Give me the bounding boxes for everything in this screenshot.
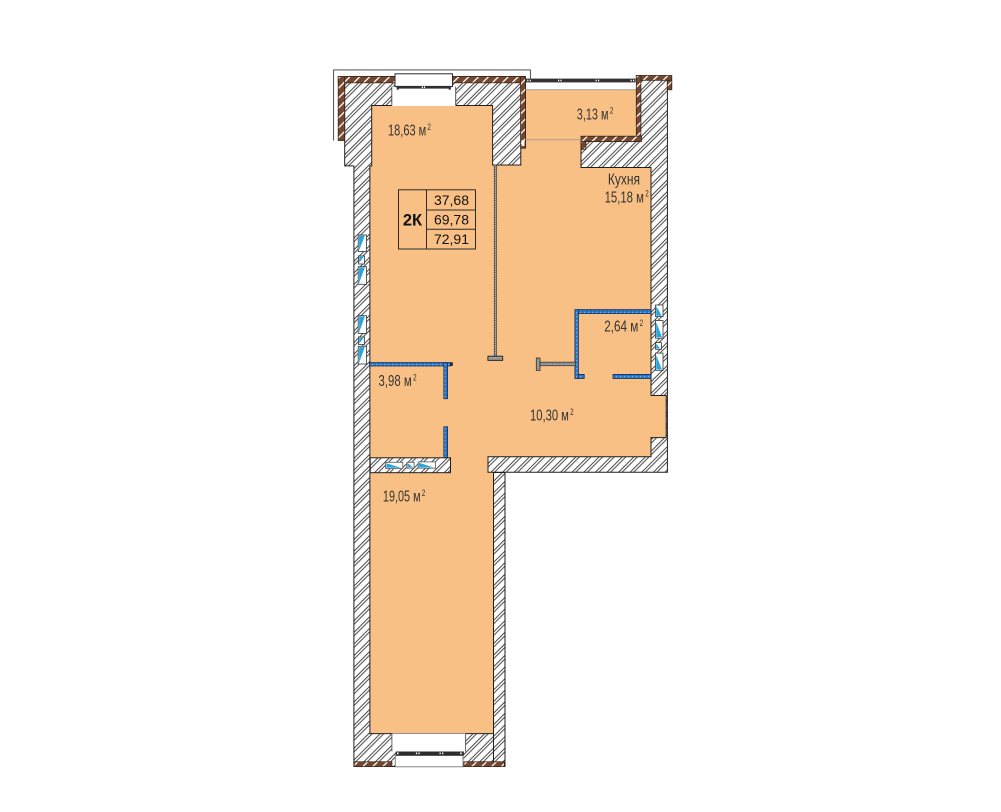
svg-text:2,64 м: 2,64 м xyxy=(604,319,638,336)
svg-text:3,13 м: 3,13 м xyxy=(577,106,609,123)
svg-text:3,98 м: 3,98 м xyxy=(379,373,412,390)
svg-text:2К: 2К xyxy=(403,211,423,229)
svg-text:72,91: 72,91 xyxy=(434,231,469,247)
svg-text:19,05 м: 19,05 м xyxy=(383,489,421,506)
svg-text:2: 2 xyxy=(640,318,644,329)
svg-text:2: 2 xyxy=(413,372,417,383)
svg-text:2: 2 xyxy=(645,189,649,200)
svg-text:2: 2 xyxy=(427,122,431,133)
svg-text:18,63 м: 18,63 м xyxy=(388,123,426,140)
svg-text:37,68: 37,68 xyxy=(434,192,469,208)
svg-text:69,78: 69,78 xyxy=(434,212,469,228)
svg-text:10,30 м: 10,30 м xyxy=(530,408,569,425)
svg-text:2: 2 xyxy=(610,106,614,117)
svg-text:2: 2 xyxy=(570,407,574,418)
svg-text:2: 2 xyxy=(422,488,426,499)
svg-text:Кухня: Кухня xyxy=(608,171,640,188)
svg-text:15,18 м: 15,18 м xyxy=(605,189,644,206)
